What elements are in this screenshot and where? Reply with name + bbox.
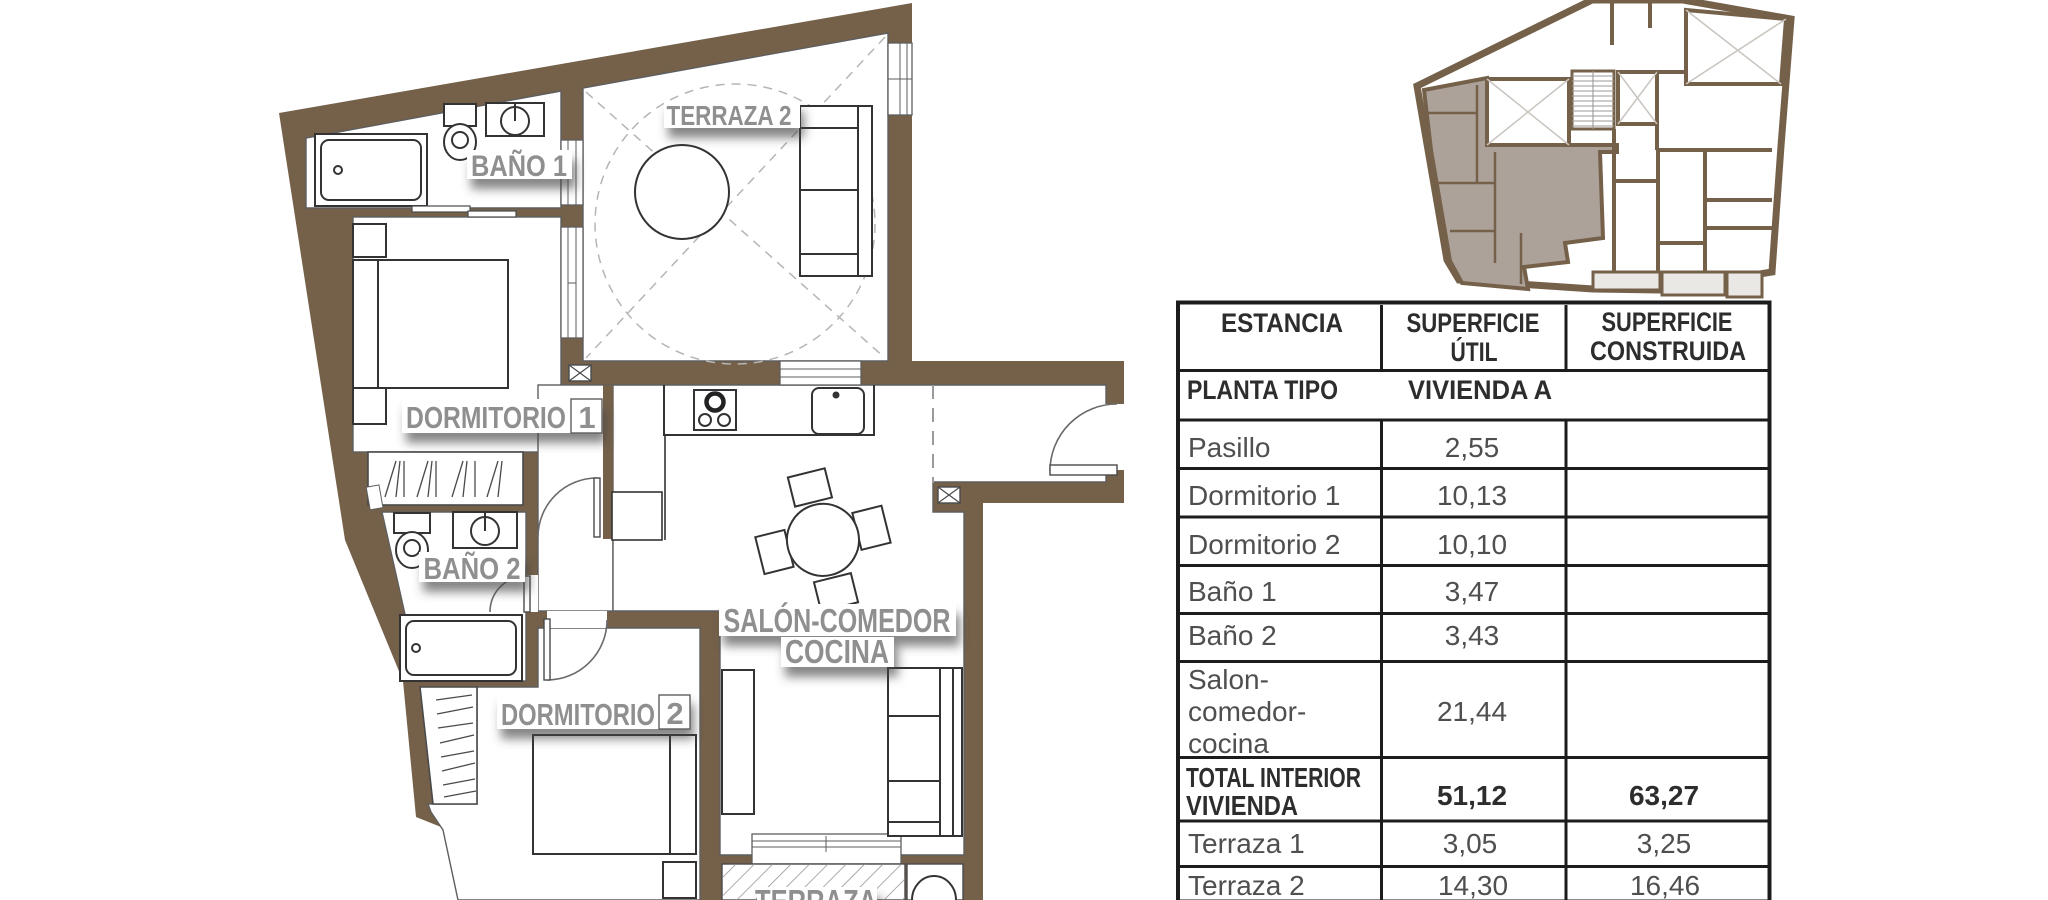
svg-text:63,27: 63,27 (1629, 780, 1699, 811)
svg-text:Baño 1: Baño 1 (1188, 576, 1277, 607)
svg-text:2: 2 (666, 696, 683, 731)
svg-text:10,10: 10,10 (1437, 529, 1507, 560)
svg-text:comedor-: comedor- (1188, 696, 1306, 727)
svg-text:BAÑO 1: BAÑO 1 (471, 149, 567, 183)
svg-text:Baño 2: Baño 2 (1188, 620, 1277, 651)
svg-text:Terraza 2: Terraza 2 (1188, 870, 1305, 900)
svg-text:3,25: 3,25 (1637, 828, 1692, 859)
svg-text:ÚTIL: ÚTIL (1451, 336, 1498, 367)
svg-text:21,44: 21,44 (1437, 696, 1507, 727)
svg-text:PLANTA TIPO: PLANTA TIPO (1187, 375, 1338, 405)
svg-text:Terraza 1: Terraza 1 (1188, 828, 1305, 859)
svg-text:cocina: cocina (1188, 728, 1269, 759)
svg-text:COCINA: COCINA (785, 633, 889, 670)
svg-text:BAÑO 2: BAÑO 2 (424, 551, 521, 586)
svg-text:3,05: 3,05 (1443, 828, 1498, 859)
svg-text:1: 1 (578, 400, 595, 435)
svg-text:SUPERFICIE: SUPERFICIE (1407, 308, 1540, 338)
svg-text:VIVIENDA A: VIVIENDA A (1408, 375, 1552, 405)
svg-text:TOTAL INTERIOR: TOTAL INTERIOR (1186, 762, 1361, 793)
svg-text:CONSTRUIDA: CONSTRUIDA (1590, 336, 1746, 366)
svg-text:51,12: 51,12 (1437, 780, 1507, 811)
svg-text:10,13: 10,13 (1437, 480, 1507, 511)
svg-text:DORMITORIO: DORMITORIO (501, 697, 655, 732)
svg-text:TERRAZA 2: TERRAZA 2 (667, 100, 792, 131)
svg-text:3,47: 3,47 (1445, 576, 1500, 607)
svg-text:TERRAZA: TERRAZA (755, 883, 877, 900)
svg-text:Dormitorio 2: Dormitorio 2 (1188, 529, 1340, 560)
svg-text:3,43: 3,43 (1445, 620, 1500, 651)
svg-text:ESTANCIA: ESTANCIA (1221, 308, 1343, 338)
svg-text:2,55: 2,55 (1445, 432, 1500, 463)
svg-text:Dormitorio 1: Dormitorio 1 (1188, 480, 1340, 511)
svg-text:Salon-: Salon- (1188, 664, 1269, 695)
svg-text:Pasillo: Pasillo (1188, 432, 1270, 463)
svg-text:14,30: 14,30 (1438, 870, 1508, 900)
svg-text:16,46: 16,46 (1630, 870, 1700, 900)
svg-text:SUPERFICIE: SUPERFICIE (1602, 307, 1733, 337)
svg-text:VIVIENDA: VIVIENDA (1186, 790, 1298, 821)
svg-text:DORMITORIO: DORMITORIO (406, 400, 566, 435)
